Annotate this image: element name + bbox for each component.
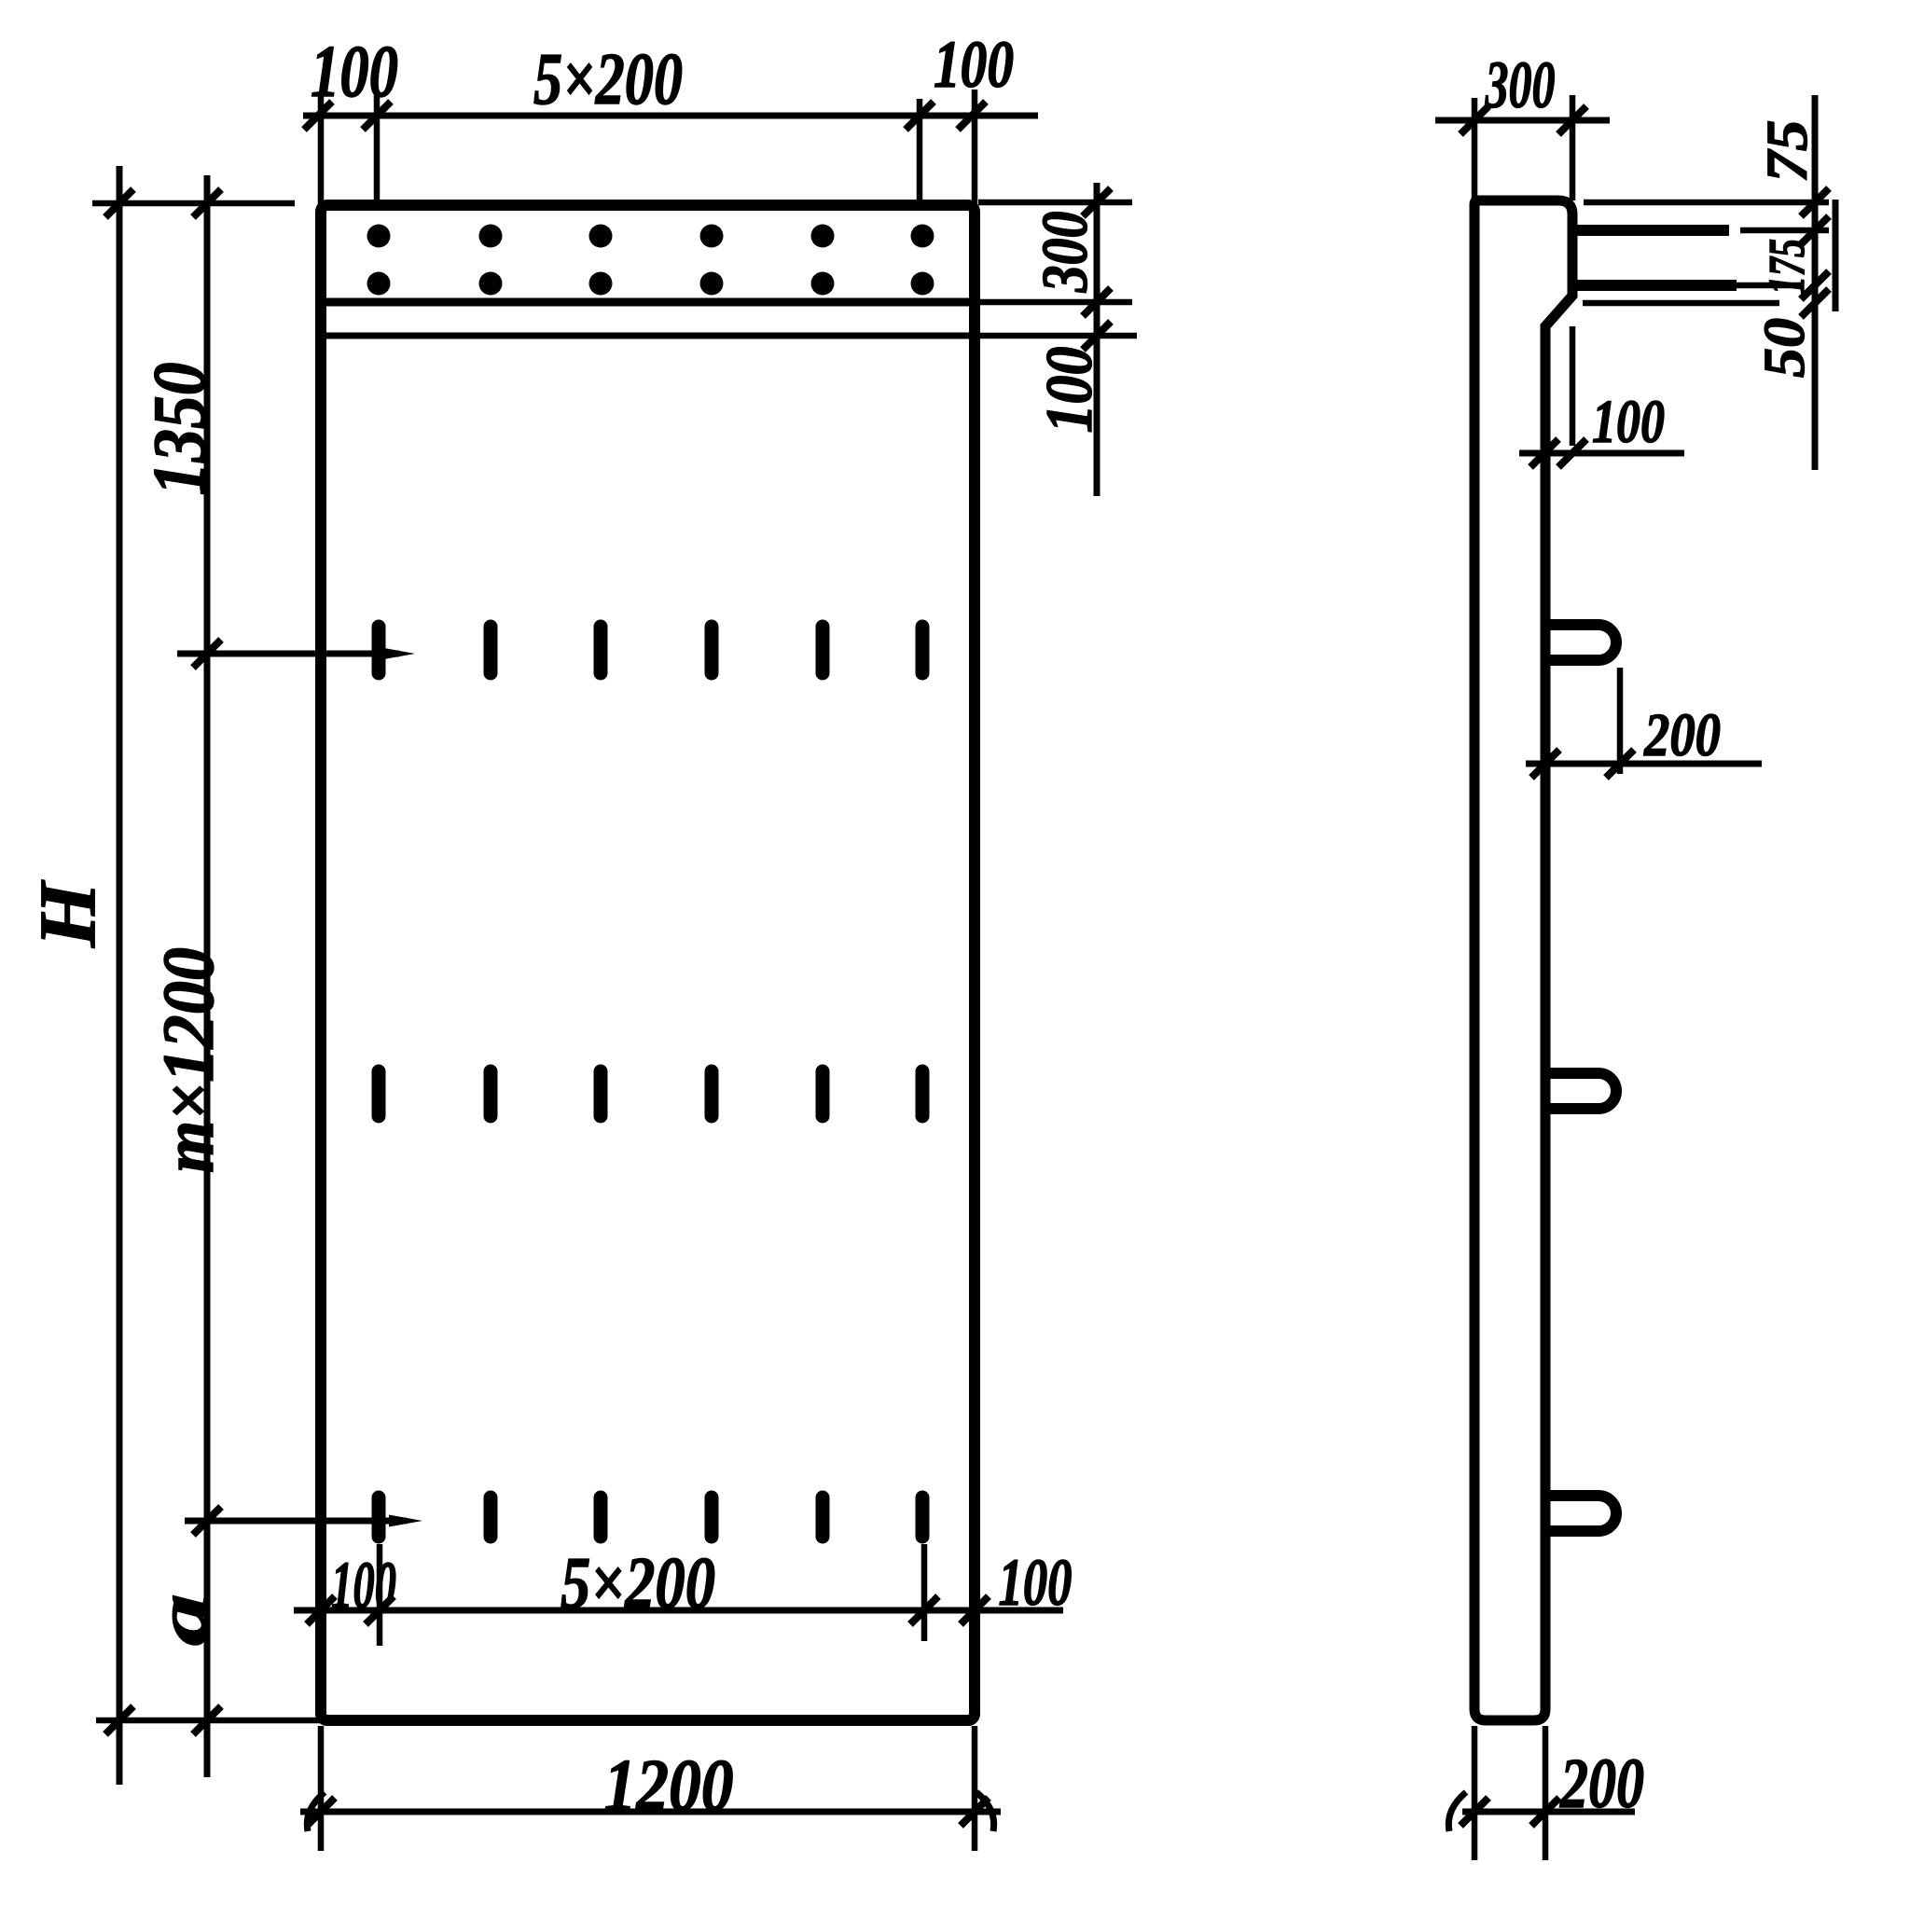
svg-text:1350: 1350 (139, 363, 221, 496)
svg-text:100: 100 (934, 27, 1014, 102)
svg-text:200: 200 (1643, 701, 1721, 769)
svg-text:175: 175 (1758, 239, 1815, 295)
svg-text:100: 100 (311, 32, 398, 113)
svg-text:5×200: 5×200 (533, 39, 683, 120)
svg-text:100: 100 (331, 1548, 396, 1622)
svg-text:100: 100 (999, 1545, 1073, 1620)
svg-text:1200: 1200 (604, 1746, 734, 1827)
svg-text:m×1200: m×1200 (147, 947, 228, 1173)
svg-text:300: 300 (1030, 212, 1101, 294)
svg-text:100: 100 (1033, 347, 1106, 434)
svg-text:300: 300 (1485, 48, 1556, 122)
svg-text:75: 75 (1756, 120, 1820, 183)
svg-text:100: 100 (1592, 388, 1665, 456)
svg-text:5×200: 5×200 (561, 1543, 715, 1624)
svg-text:a: a (144, 1594, 222, 1646)
svg-text:200: 200 (1559, 1745, 1644, 1823)
svg-text:H: H (22, 879, 112, 948)
svg-text:50: 50 (1753, 318, 1817, 378)
